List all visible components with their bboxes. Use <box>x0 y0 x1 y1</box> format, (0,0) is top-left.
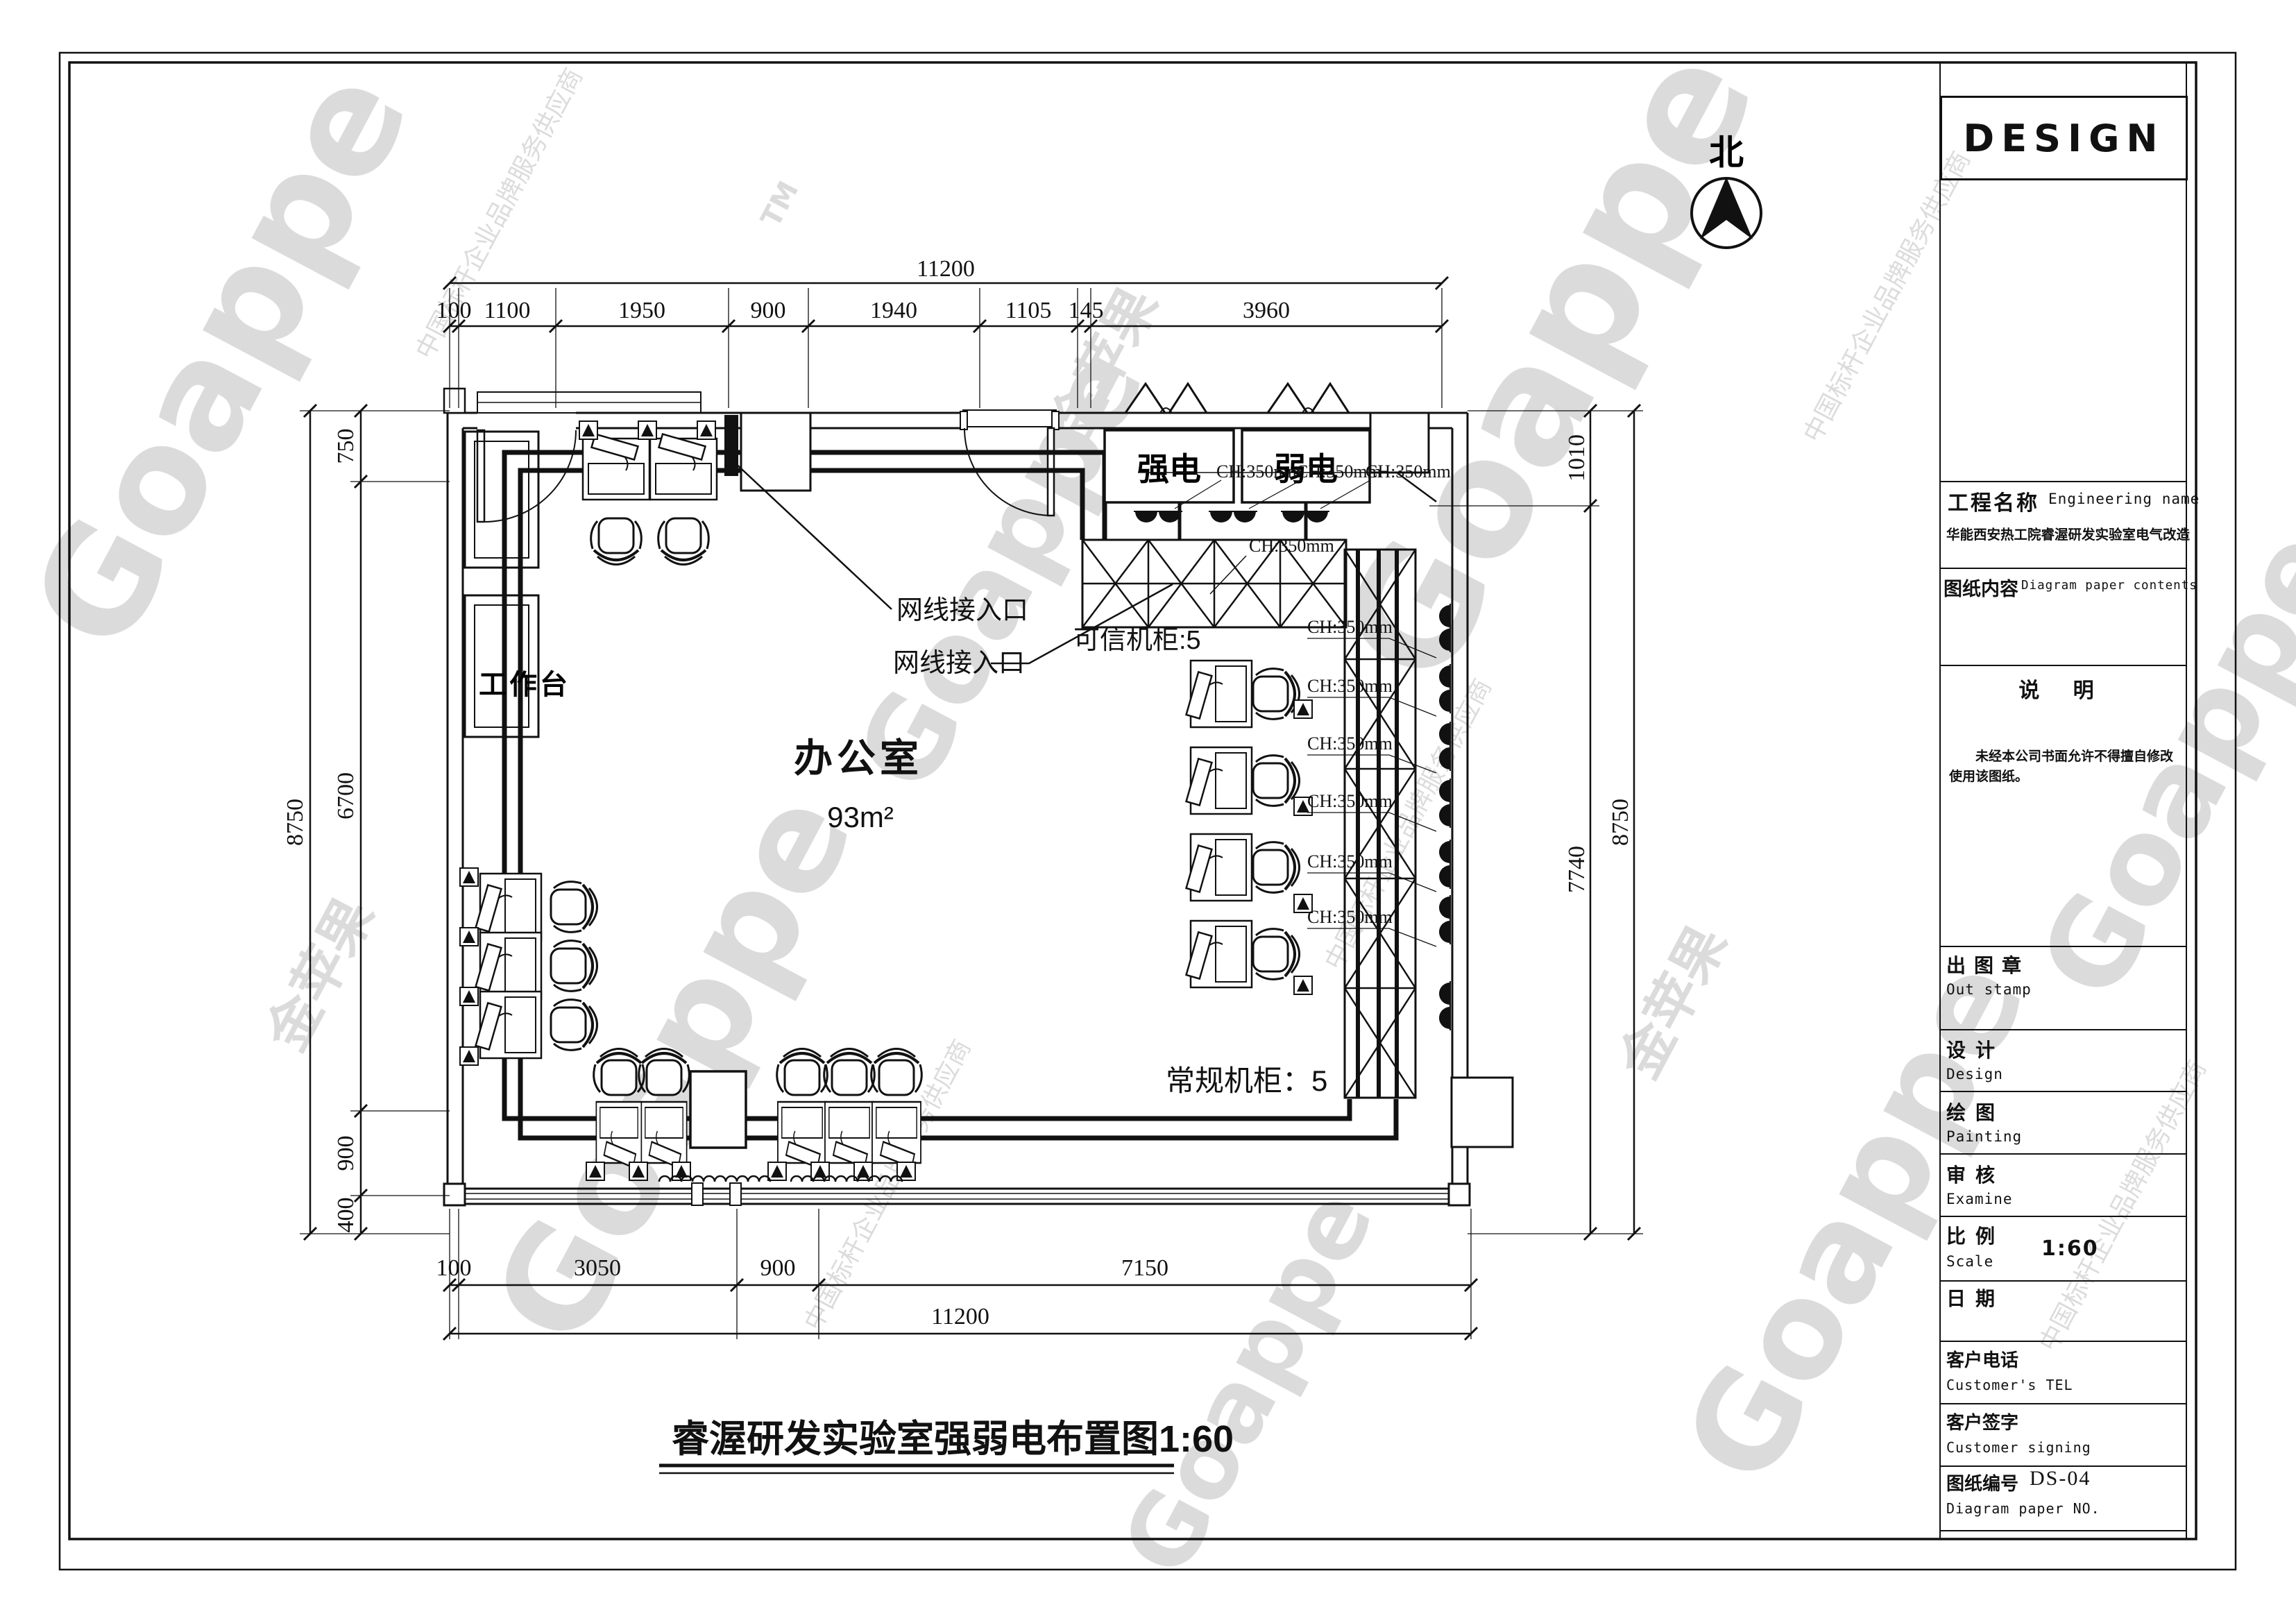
dim-left-seg: 900 <box>333 1136 359 1171</box>
content-label-en: Diagram paper contents <box>2021 579 2197 593</box>
design-label-en: Design <box>1946 1066 2003 1082</box>
net-port-label-1: 网线接入口 <box>896 596 1028 625</box>
content-label: 图纸内容 <box>1944 574 2018 601</box>
drawing-sheet: Goappe Goappe Goappe Goappe Goappe Goapp… <box>0 0 2296 1623</box>
dim-left-seg: 400 <box>333 1198 359 1233</box>
double-door-icon <box>1268 384 1349 413</box>
ch-label: CH:350mm <box>1307 851 1393 872</box>
scale-value: 1:60 <box>2041 1237 2099 1261</box>
watermark-name-cn: 金苹果 <box>255 888 386 1062</box>
watermark-tagline: 中国标杆企业品牌服务供应商 <box>1320 674 1497 974</box>
ch-label: CH:350mm <box>1366 461 1451 482</box>
project-label-en: Engineering name <box>2048 491 2200 507</box>
right-wall-box <box>1452 1078 1513 1147</box>
trusted-cabinet-label: 可信机柜:5 <box>1073 626 1201 655</box>
sign-label-en: Customer signing <box>1946 1439 2091 1456</box>
date-label: 日期 <box>1946 1284 2005 1311</box>
painting-label-en: Painting <box>1946 1128 2022 1145</box>
ch-label: CH:350mm <box>1307 733 1393 754</box>
examine-label: 审核 <box>1946 1160 2005 1188</box>
plan-title: 睿渥研发实验室强弱电布置图1:60 <box>672 1418 1234 1460</box>
notes-text: 未经本公司书面允许不得擅自修改使用该图纸。 <box>1949 747 2179 788</box>
drawing-no-label-en: Diagram paper NO. <box>1946 1500 2100 1517</box>
dim-left-seg: 6700 <box>333 772 359 819</box>
dim-bottom-seg: 3050 <box>574 1255 621 1281</box>
title-block: DESIGN 工程名称 Engineering name 华能西安热工院睿渥研发… <box>1939 62 2187 1539</box>
dim-bottom-total: 11200 <box>931 1304 989 1329</box>
dim-left-seg: 750 <box>333 429 359 464</box>
sign-label: 客户签字 <box>1946 1409 2018 1434</box>
ch-label: CH:350mm <box>1307 676 1393 696</box>
plan-title-block: 睿渥研发实验室强弱电布置图1:60 <box>659 1418 1234 1473</box>
notes-title: 说 明 <box>1941 673 2186 704</box>
north-label: 北 <box>1709 133 1744 172</box>
dim-top-seg: 100 <box>436 298 472 323</box>
watermark-brand: Goappe <box>0 44 442 676</box>
dim-top-seg: 1105 <box>1005 298 1052 323</box>
dim-bottom-seg: 7150 <box>1121 1255 1168 1281</box>
stamp-label-en: Out stamp <box>1946 981 2032 998</box>
dim-top-total: 11200 <box>917 256 975 282</box>
watermark-brand: Goappe <box>1100 1172 1396 1593</box>
regular-cabinet-label: 常规机柜：5 <box>1166 1064 1327 1097</box>
project-name: 华能西安热工院睿渥研发实验室电气改造 <box>1946 523 2190 543</box>
ch-label: CH:350mm <box>1307 791 1393 811</box>
tel-label-en: Customer's TEL <box>1946 1377 2073 1393</box>
net-port-label-2: 网线接入口 <box>893 649 1025 678</box>
dim-top-seg: 1100 <box>484 298 531 323</box>
dim-right-total: 8750 <box>1608 799 1633 846</box>
tel-label: 客户电话 <box>1946 1346 2018 1372</box>
dim-top-seg: 3960 <box>1243 298 1290 323</box>
ch-label: CH:350mm <box>1216 461 1302 482</box>
dim-top-seg: 1950 <box>618 298 665 323</box>
dim-bottom-seg: 900 <box>760 1255 796 1281</box>
scale-label: 比例 <box>1946 1221 2005 1249</box>
strong-power-label: 强电 <box>1137 451 1201 487</box>
brand-logo: DESIGN <box>1940 96 2188 180</box>
ch-label: CH:350mm <box>1307 617 1393 637</box>
ch-label: CH:350mm <box>1307 907 1393 927</box>
column-box <box>690 1071 746 1148</box>
network-entry-point <box>724 415 738 476</box>
scale-label-en: Scale <box>1946 1253 1993 1270</box>
stamp-label: 出图章 <box>1946 951 2030 978</box>
examine-label-en: Examine <box>1946 1191 2013 1207</box>
ch-label: CH:350mm <box>1249 536 1334 556</box>
drawing-no-label: 图纸编号 <box>1946 1470 2018 1495</box>
watermark-name-cn: 金苹果 <box>1608 916 1740 1089</box>
room-name-label: 办公室 <box>794 736 923 780</box>
ceiling-outlets-top <box>1134 511 1329 522</box>
dim-top-seg: 900 <box>751 298 786 323</box>
room-area-label: 93m² <box>827 801 894 833</box>
desks-right-column <box>1187 661 1312 994</box>
dim-top-seg: 1940 <box>870 298 917 323</box>
watermark-tm: TM <box>755 176 805 232</box>
desks-left-column <box>460 868 597 1065</box>
dim-bottom-seg: 100 <box>436 1255 472 1281</box>
desks-top-left <box>579 421 717 565</box>
workbench-label: 工作台 <box>479 670 570 700</box>
dim-right-seg: 7740 <box>1564 846 1590 893</box>
drawing-no-value: DS-04 <box>2030 1467 2091 1490</box>
project-label: 工程名称 <box>1948 486 2039 516</box>
painting-label: 绘图 <box>1946 1098 2005 1125</box>
dim-left-total: 8750 <box>282 799 308 846</box>
dim-top-seg: 145 <box>1069 298 1104 323</box>
dim-right-seg: 1010 <box>1564 434 1590 482</box>
design-label: 设计 <box>1946 1035 2005 1063</box>
door-top-left <box>477 430 576 522</box>
strong-power-box: 强电 <box>1105 430 1234 502</box>
